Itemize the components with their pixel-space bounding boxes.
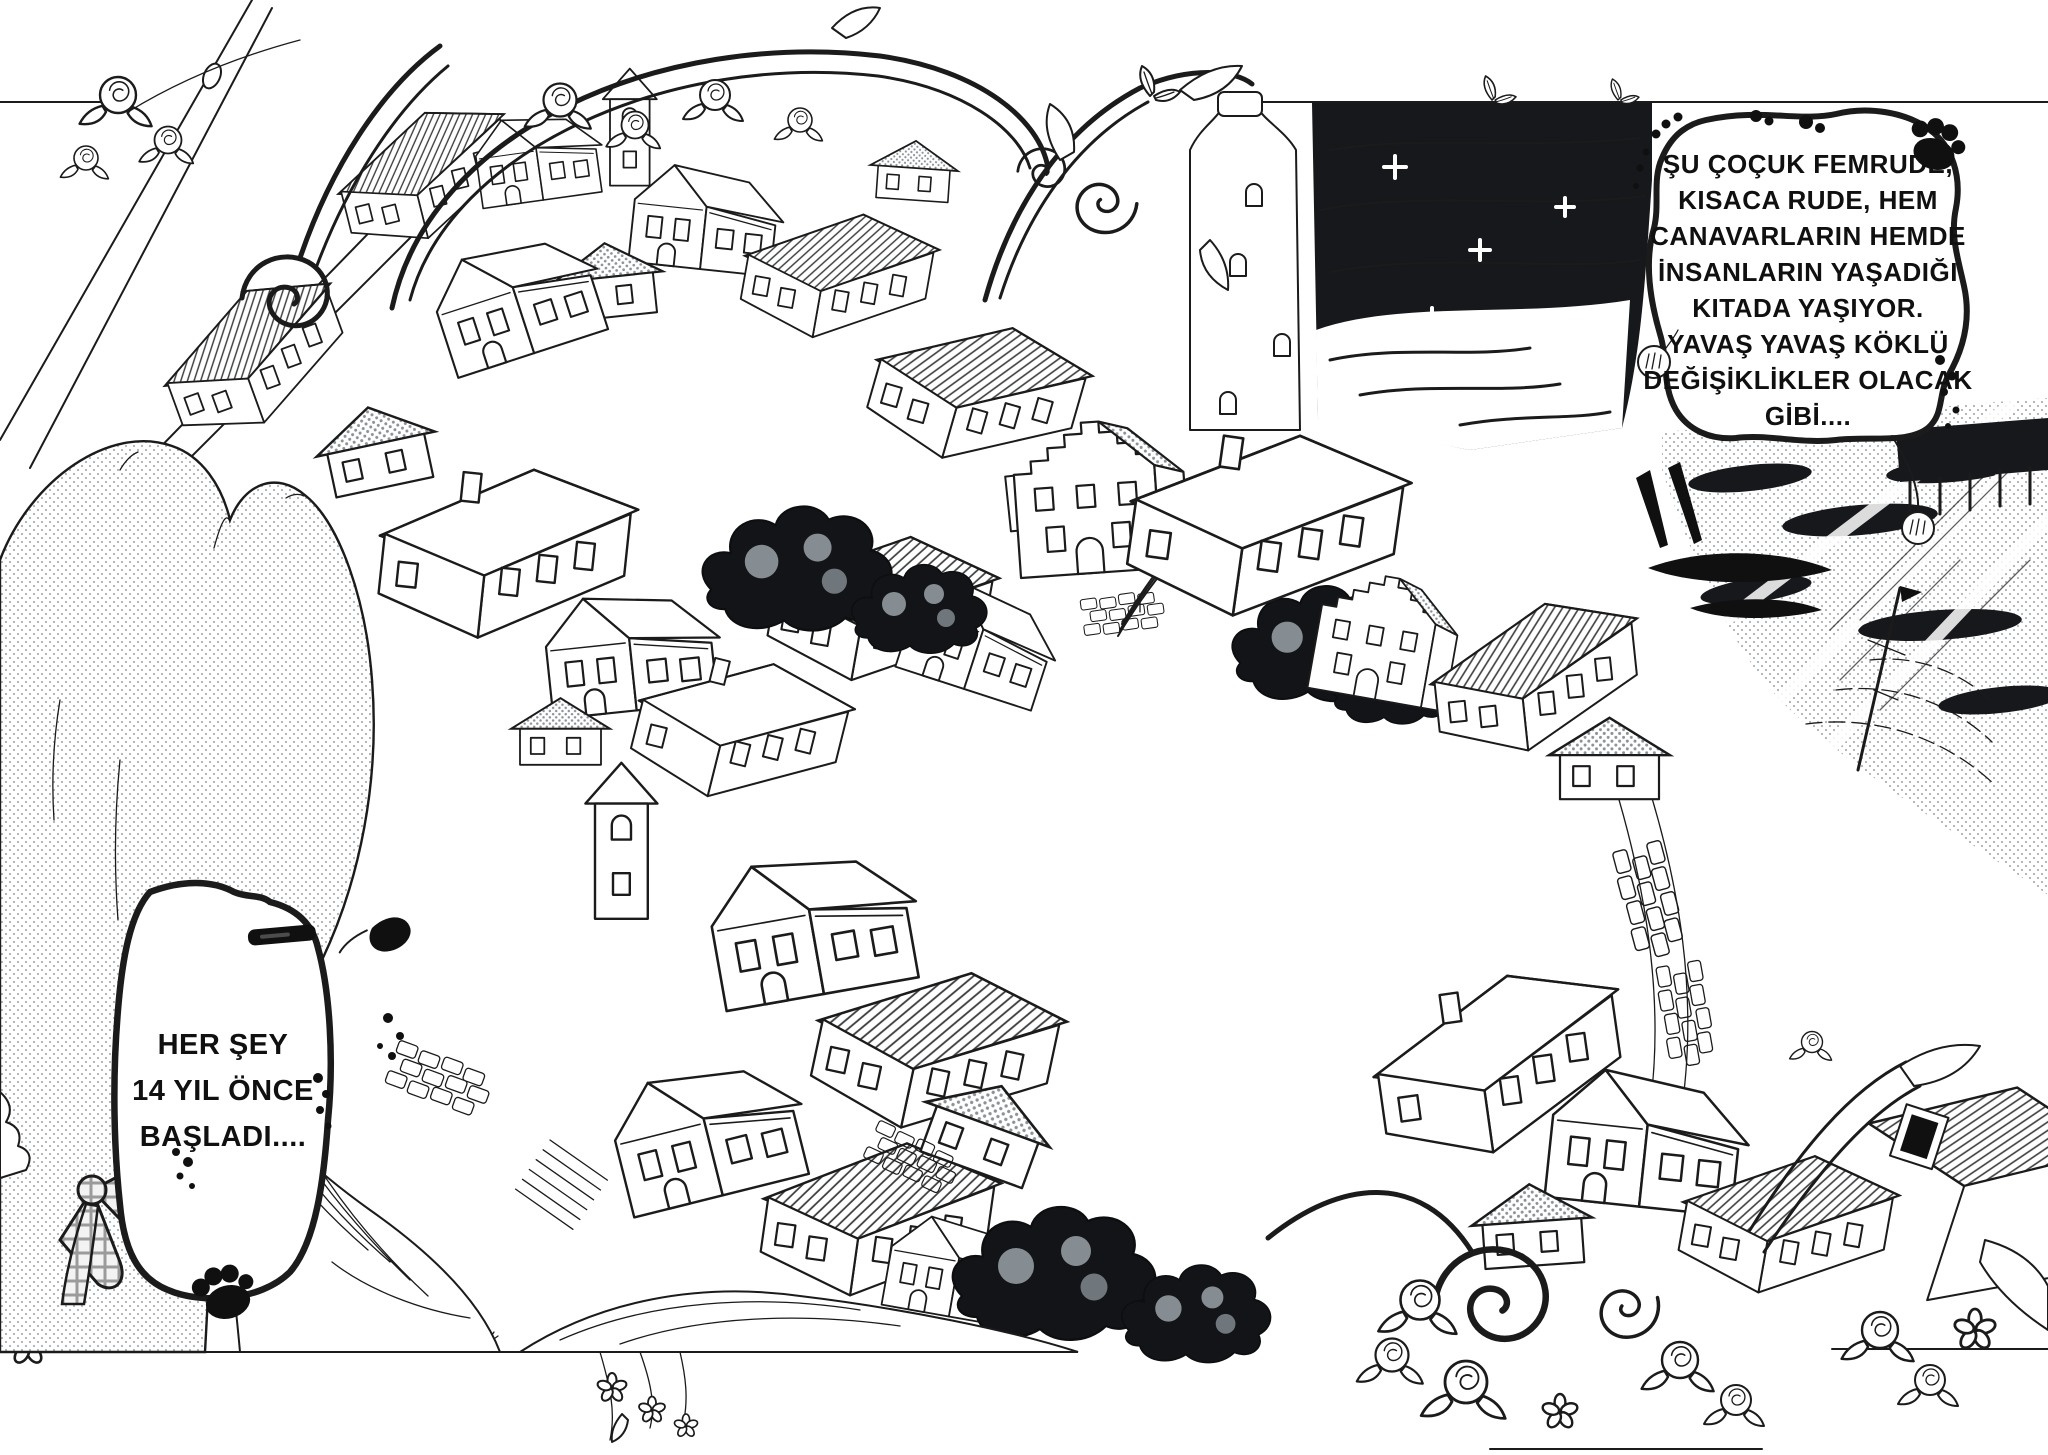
caption-box-outline <box>114 883 330 1298</box>
leaf-sprig-icon <box>1484 76 1516 104</box>
house <box>309 395 444 500</box>
clip-icon <box>340 903 415 973</box>
leaf-sprig-icon <box>1611 79 1639 104</box>
house <box>733 196 943 357</box>
flower-icon <box>1541 1394 1579 1430</box>
rose-icon <box>1898 1365 1958 1406</box>
cobblestones <box>384 1040 496 1119</box>
flower-icon <box>1953 1309 1997 1351</box>
house <box>1549 718 1670 799</box>
house <box>144 263 368 450</box>
paw-pad-charm-icon <box>1902 512 1934 544</box>
cobblestones <box>1080 589 1166 638</box>
rose-icon <box>1421 1361 1505 1418</box>
rose-icon <box>774 108 822 141</box>
leaf-sprig-icon <box>1140 66 1180 101</box>
house <box>703 840 929 1011</box>
rose-icon <box>139 127 193 164</box>
bell-tower <box>585 763 657 919</box>
rose-icon <box>1790 1032 1832 1061</box>
rose-icon <box>60 146 108 179</box>
rose-icon <box>1378 1281 1456 1334</box>
house <box>424 221 616 378</box>
flower-icon <box>596 1373 627 1403</box>
flower-icon <box>673 1414 698 1438</box>
stairs <box>516 1140 608 1229</box>
swirl-ornament-icon <box>1077 184 1137 232</box>
swirl-ornament-icon <box>1595 1279 1668 1345</box>
rose-icon <box>1842 1312 1914 1361</box>
house <box>868 138 960 203</box>
rose-icon <box>1642 1342 1714 1391</box>
rose-icon <box>1357 1339 1423 1384</box>
manga-page: ŞU ÇOÇUK FEMRUDE, KISACA RUDE, HEM CANAV… <box>0 0 2048 1455</box>
hanging-flower-sprig <box>596 1352 698 1442</box>
artwork <box>0 0 2048 1455</box>
paw-pad-charm-icon <box>1638 346 1670 378</box>
